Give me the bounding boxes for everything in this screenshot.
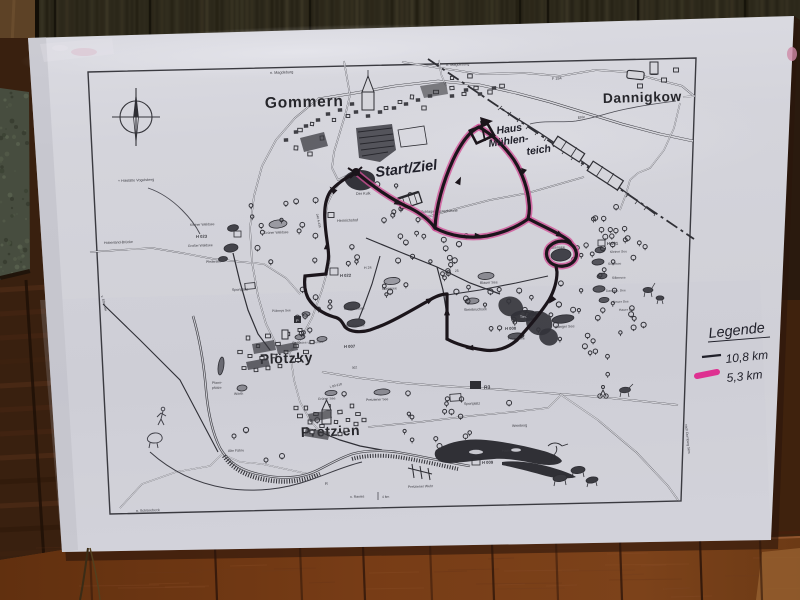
svg-text:Märchensee: Märchensee <box>346 323 365 328</box>
svg-text:Heinrichshof: Heinrichshof <box>337 218 359 223</box>
svg-text:pfütze: pfütze <box>212 386 222 390</box>
svg-text:H 009: H 009 <box>482 460 494 465</box>
svg-text:n. Schönebeck: n. Schönebeck <box>136 508 160 513</box>
svg-text:Pretziener See: Pretziener See <box>366 397 389 402</box>
svg-text:Dannigkow: Dannigkow <box>603 89 682 106</box>
svg-text:n. Magdeburg: n. Magdeburg <box>270 70 294 75</box>
svg-text:Kolumbussee: Kolumbussee <box>344 306 365 311</box>
svg-text:Sportplatz: Sportplatz <box>232 287 249 292</box>
svg-text:H 023: H 023 <box>196 234 208 239</box>
svg-text:Pfann-: Pfann- <box>212 381 223 385</box>
svg-text:n. Ranies: n. Ranies <box>350 494 365 499</box>
svg-text:Hafen: Hafen <box>502 449 512 453</box>
svg-text:Kleiner See: Kleiner See <box>610 249 627 254</box>
svg-text:F 184: F 184 <box>552 76 562 81</box>
svg-text:4 km: 4 km <box>382 495 390 499</box>
svg-text:Sportplatz: Sportplatz <box>464 401 481 406</box>
svg-text:Pfeilersee: Pfeilersee <box>206 259 221 264</box>
svg-text:P: P <box>296 318 299 323</box>
svg-text:Pülmeys See: Pülmeys See <box>272 308 291 313</box>
svg-text:Silbersee: Silbersee <box>612 276 626 280</box>
svg-text:362: 362 <box>352 365 358 370</box>
svg-text:Weinberg: Weinberg <box>512 423 527 428</box>
svg-text:Blauer See: Blauer See <box>480 280 498 285</box>
svg-text:Neuer See: Neuer See <box>613 299 629 304</box>
svg-text:25: 25 <box>455 269 459 273</box>
svg-text:H 008: H 008 <box>505 326 517 331</box>
svg-text:R3: R3 <box>484 385 491 391</box>
svg-text:Hauer See: Hauer See <box>619 307 635 312</box>
svg-text:Steinbruchsee: Steinbruchsee <box>464 307 487 312</box>
svg-text:R: R <box>325 481 328 486</box>
svg-text:H 022: H 022 <box>340 273 352 278</box>
svg-text:Der Kulk: Der Kulk <box>356 191 371 196</box>
svg-text:Alte Fähre: Alte Fähre <box>228 448 244 453</box>
svg-text:Wörth: Wörth <box>234 392 244 396</box>
svg-text:n. Magdeburg: n. Magdeburg <box>446 62 470 67</box>
svg-text:H 007: H 007 <box>344 344 356 349</box>
svg-text:Gommern: Gommern <box>265 93 344 112</box>
svg-text:H 24: H 24 <box>364 266 372 270</box>
svg-text:H 001: H 001 <box>607 241 619 246</box>
